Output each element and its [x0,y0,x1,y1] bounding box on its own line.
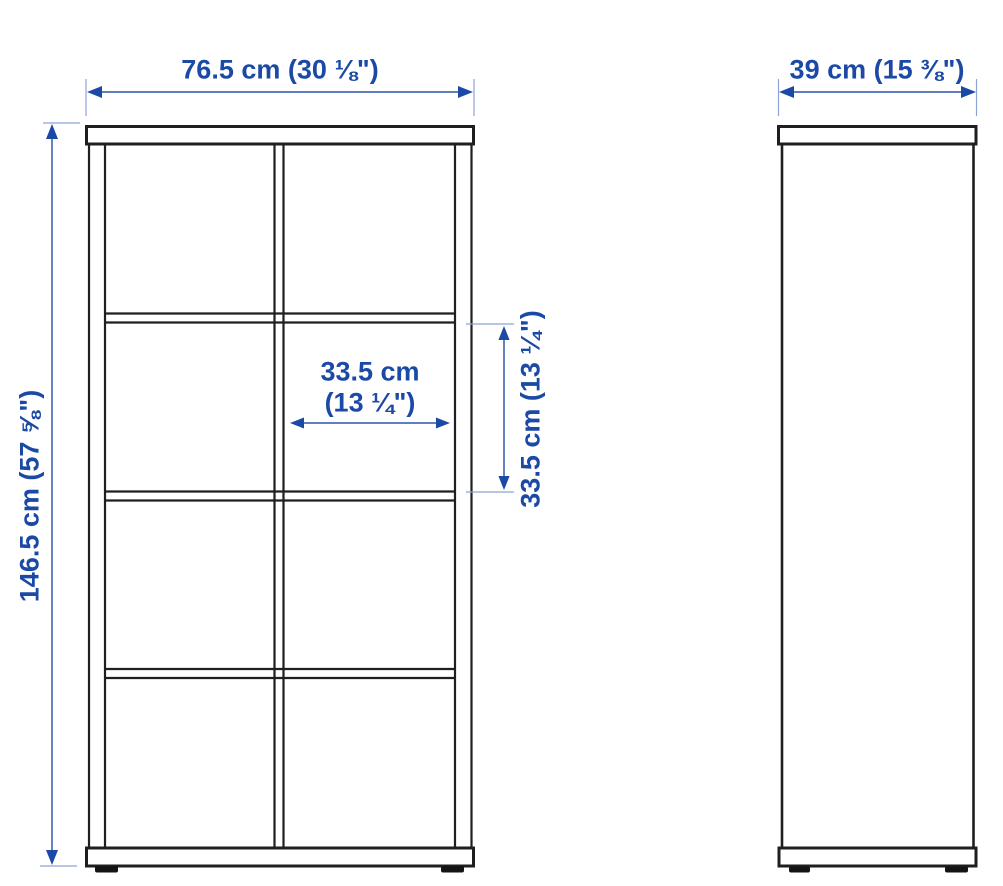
dim-overall-height-arrow-bottom [46,850,58,865]
side-top-panel [779,127,977,145]
dim-depth-arrow-left [779,86,794,98]
dim-compartment-height-arrow-bottom [498,476,509,490]
compartment-height-label: 33.5 cm (13 ¼") [515,310,546,507]
compartment-width-label-cm: 33.5 cm [320,357,419,388]
dim-overall-width-arrow-left [87,86,102,98]
side-left-foot [789,867,810,873]
front-left-foot [95,866,118,873]
compartment-width-label: 33.5 cm (13 ¼") [320,357,419,420]
front-bottom-panel [87,848,474,866]
dim-compartment-width-arrow-right [436,418,450,429]
dim-depth-arrow-right [961,86,976,98]
overall-height-label: 146.5 cm (57 ⅝") [14,390,45,602]
front-top-panel [87,127,474,145]
dim-compartment-height [466,324,514,492]
side-body-panel [782,144,974,848]
front-view [87,127,474,873]
compartment-width-label-inches: (13 ¼") [320,388,419,419]
side-right-foot [945,867,968,873]
side-view [779,127,977,873]
depth-label: 39 cm (15 ⅜") [790,54,965,85]
diagram-line-art [0,0,1003,886]
furniture-dimension-diagram: 76.5 cm (30 ⅛") 39 cm (15 ⅜") 146.5 cm (… [0,0,1003,886]
overall-width-label: 76.5 cm (30 ⅛") [181,54,378,85]
dim-compartment-height-arrow-top [498,326,509,340]
dim-overall-height [40,123,80,866]
dim-overall-width-arrow-right [458,86,473,98]
dim-overall-height-arrow-top [46,124,58,139]
front-right-foot [441,866,464,873]
side-bottom-panel [779,848,976,866]
dim-compartment-width-arrow-left [290,418,304,429]
